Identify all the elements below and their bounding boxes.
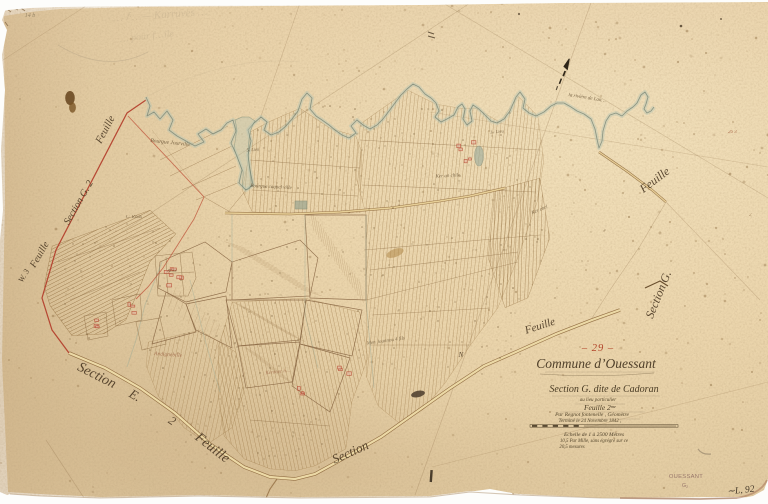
svg-text:Echelle de 1 à 2500 Mètres: Echelle de 1 à 2500 Mètres (563, 432, 624, 438)
svg-text:Section G. dite de Cadoran: Section G. dite de Cadoran (549, 384, 658, 395)
svg-text:Anse: Anse (166, 269, 178, 274)
svg-text:20,5 mesures: 20,5 mesures (559, 445, 584, 450)
svg-text:26 3: 26 3 (728, 130, 737, 135)
svg-text:14 b: 14 b (25, 12, 36, 19)
svg-text:Terminé le 24 Novembre 1842 ,: Terminé le 24 Novembre 1842 , (559, 419, 622, 424)
svg-text:N: N (458, 351, 464, 359)
svg-text:OUESSANT: OUESSANT (669, 474, 703, 480)
svg-text:Commune d’Ouessant: Commune d’Ouessant (536, 356, 657, 371)
svg-text:– 29 –: – 29 – (581, 343, 614, 354)
svg-text:C. Roux: C. Roux (126, 215, 143, 220)
svg-text:10,5 Par Mille, sans égrégré s: 10,5 Par Mille, sans égrégré sur ce (560, 439, 629, 444)
